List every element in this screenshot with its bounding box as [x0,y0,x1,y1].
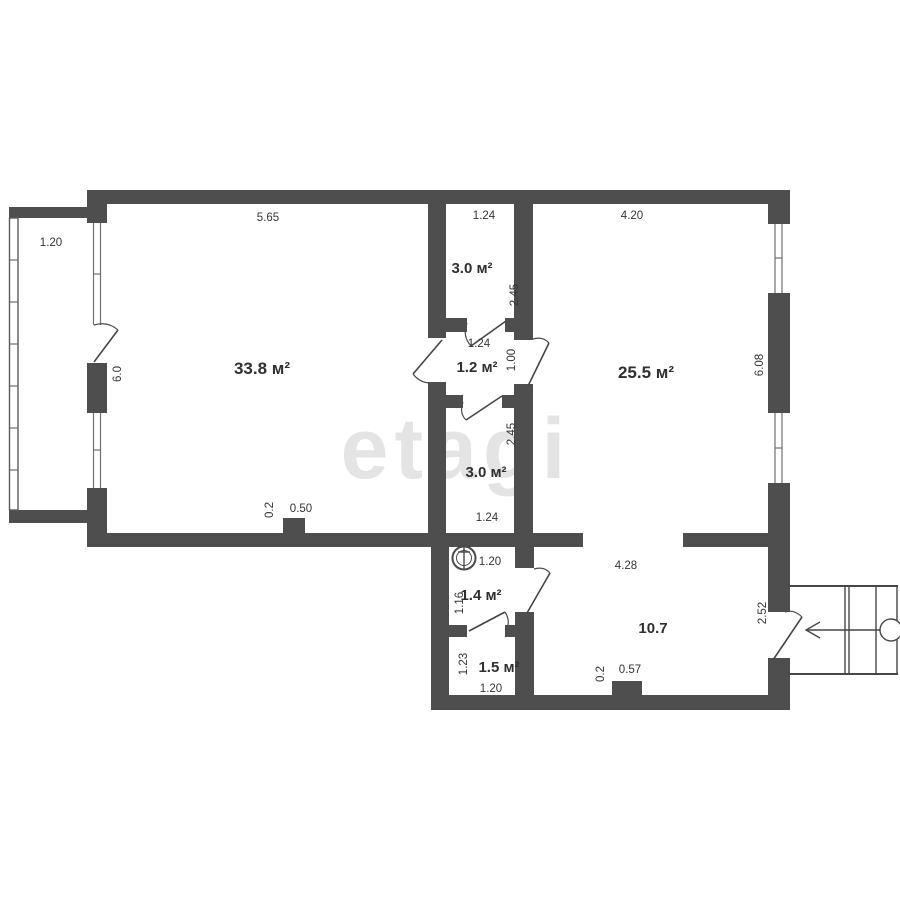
wall-ledge-living [283,518,305,533]
dim-bedroom-width: 4.20 [621,210,643,222]
door-gap [463,394,502,409]
wall-bathroom-bottom-left [449,625,467,637]
window-bedroom-lower [768,413,790,483]
room-label-toilet: 1.5 м² [478,659,519,676]
wall-hallway-bottom-right [502,395,514,408]
dim-storage-top-width: 1.24 [473,210,496,222]
wall-column-right-lower-a [515,547,534,568]
balcony-glazing [10,218,19,510]
wall-bottom [431,695,790,710]
vent-icon [453,547,476,570]
wall-ledge-corridor [612,681,642,695]
door-arc [413,374,429,383]
wall-storage-top-bottom-left [446,318,467,332]
staircase [788,586,900,674]
wall-column-left-lower [431,547,449,710]
door-entry [767,611,802,660]
room-label-storage-mid: 3.0 м² [465,464,506,481]
floorplan-drawing: etagi [0,0,900,900]
dim-toilet-width: 1.20 [480,683,502,695]
balcony-glazing-frame [10,218,19,510]
wall-main-horizontal-left [87,533,583,547]
wall-hallway-bottom-left [446,395,463,408]
dim-toilet-height: 1.23 [458,653,470,675]
wall-right-b [768,293,790,413]
dim-bathroom-height: 1.16 [454,592,466,614]
room-label-living: 33.8 м² [234,359,290,378]
wall-top [87,190,790,204]
wall-right-a [768,190,790,224]
dim-living-height: 6.0 [112,366,124,382]
door-living-hallway [413,338,447,383]
door-gap [467,624,505,638]
wall-storage-top-bottom-right [505,318,514,332]
wall-column-left-upper [428,204,446,338]
floorplan-page: etagi [0,0,900,900]
door-arc [534,568,550,573]
dim-hallway-width: 1.24 [468,338,491,350]
dim-living-ledge-depth: 0.2 [264,502,276,518]
wall-right-c [768,483,790,612]
room-label-corridor: 10.7 [638,620,667,637]
dim-storage-mid-height: 2.45 [506,423,518,445]
dim-living-ledge-width: 0.50 [290,503,312,515]
wall-column-right-upper [514,204,533,340]
dim-corridor-width: 4.28 [615,560,637,572]
dim-living-width: 5.65 [257,212,279,224]
window-living-lower [87,413,107,488]
door-balcony [86,324,119,363]
door-bathroom-corridor [515,568,550,613]
entry-arrow-origin-circle [880,619,900,641]
wall-left-mid [87,363,107,413]
room-label-storage-top: 3.0 м² [451,260,492,277]
dim-storage-mid-width: 1.24 [476,512,499,524]
wall-balcony-top [9,207,87,218]
dim-corridor-ledge-depth: 0.2 [595,666,607,682]
dim-bathroom-width: 1.20 [479,556,501,568]
wall-left-upper [87,190,107,223]
door-bathroom-toilet [467,612,508,638]
room-label-bathroom: 1.4 м² [460,587,501,604]
room-label-hallway: 1.2 м² [456,359,497,376]
dim-storage-top-height: 2.45 [509,284,521,306]
dim-hallway-door-width: 1.00 [506,349,518,371]
wall-balcony-bottom [9,510,87,523]
dim-bedroom-height: 6.08 [754,354,766,376]
dim-corridor-ledge-width: 0.57 [619,664,641,676]
wall-column-right-mid [514,383,533,533]
room-label-bedroom: 25.5 м² [618,363,674,382]
window-living-upper [87,223,107,325]
window-bedroom-upper [768,224,790,293]
opening-bedroom-corridor [583,532,683,548]
door-arc [533,338,549,343]
dim-entry-wall-height: 2.52 [757,602,769,624]
watermark-text: etagi [341,401,572,497]
door-hallway-bedroom [513,338,549,386]
wall-column-left-mid [428,382,446,533]
wall-bathroom-bottom-right [505,625,534,637]
door-gap [427,338,447,382]
dim-balcony-width: 1.20 [40,237,62,249]
